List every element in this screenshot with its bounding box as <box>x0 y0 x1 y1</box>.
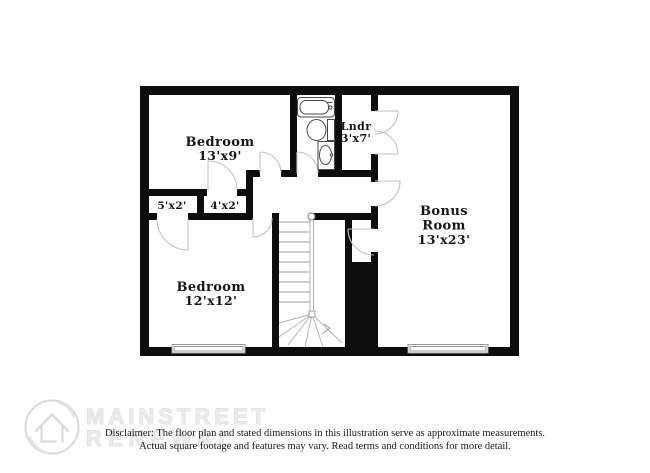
staircase <box>279 213 342 347</box>
wall-segment <box>140 189 207 196</box>
closet-right-dims: 4'x2' <box>210 200 239 212</box>
wall-segment <box>310 213 378 220</box>
bonus-room-dims: 13'x23' <box>418 232 471 247</box>
wall-segment <box>371 95 378 111</box>
bedroom-bottom-dims: 12'x12' <box>185 293 238 308</box>
wall-segment <box>149 213 157 220</box>
wall-segment <box>290 95 297 177</box>
wall-segment <box>237 189 253 196</box>
bedroom-top-door-arc <box>260 152 281 173</box>
bathroom-fixtures <box>298 98 335 170</box>
bedroom-bottom-window <box>172 345 245 354</box>
stair-chase-mass <box>345 262 378 347</box>
stair-winder-lines <box>279 314 342 347</box>
bathtub-icon <box>298 98 335 118</box>
disclaimer-line1: Disclaimer: The floor plan and stated di… <box>0 428 650 441</box>
wall-segment <box>140 86 149 356</box>
bathroom-door-arc <box>297 152 318 173</box>
stair-treads <box>279 222 310 302</box>
bonus-room-door-arc <box>375 181 400 206</box>
wall-segment <box>281 170 297 177</box>
floor-plan-page: MAINSTREET RENEWAL <box>0 0 650 473</box>
wall-segment <box>318 170 372 177</box>
bonus-room-window <box>408 345 488 354</box>
wall-segment <box>510 86 519 356</box>
bonus-room-label-1: Bonus <box>420 204 468 219</box>
laundry-double-door-top-arc <box>375 111 398 134</box>
closet-left-dims: 5'x2' <box>157 200 186 212</box>
stair-rail <box>310 218 314 314</box>
toilet-icon <box>307 120 335 141</box>
disclaimer-line2: Actual square footage and features may v… <box>0 441 650 454</box>
wall-segment <box>197 196 204 213</box>
closet-right-door-arc <box>208 161 237 190</box>
floor-plan-drawing: Bedroom 13'x9' Lndr 3'x7' Bonus Room 13'… <box>0 0 650 473</box>
disclaimer: Disclaimer: The floor plan and stated di… <box>0 428 650 453</box>
wall-segment <box>253 170 260 177</box>
bedroom-bottom-door-arc <box>253 218 272 237</box>
laundry-dims: 3'x7' <box>341 132 372 145</box>
stair-newel-post <box>308 213 315 220</box>
closet-left-door-arc <box>157 219 188 250</box>
wall-segment <box>371 154 378 182</box>
stair-landing-post <box>309 311 315 317</box>
sink-icon <box>318 142 335 170</box>
wall-segment <box>140 86 519 95</box>
wall-segment <box>272 213 279 347</box>
laundry-double-door-bottom-arc <box>375 131 398 154</box>
bedroom-top-dims: 13'x9' <box>198 148 242 163</box>
wall-segment <box>188 213 253 220</box>
